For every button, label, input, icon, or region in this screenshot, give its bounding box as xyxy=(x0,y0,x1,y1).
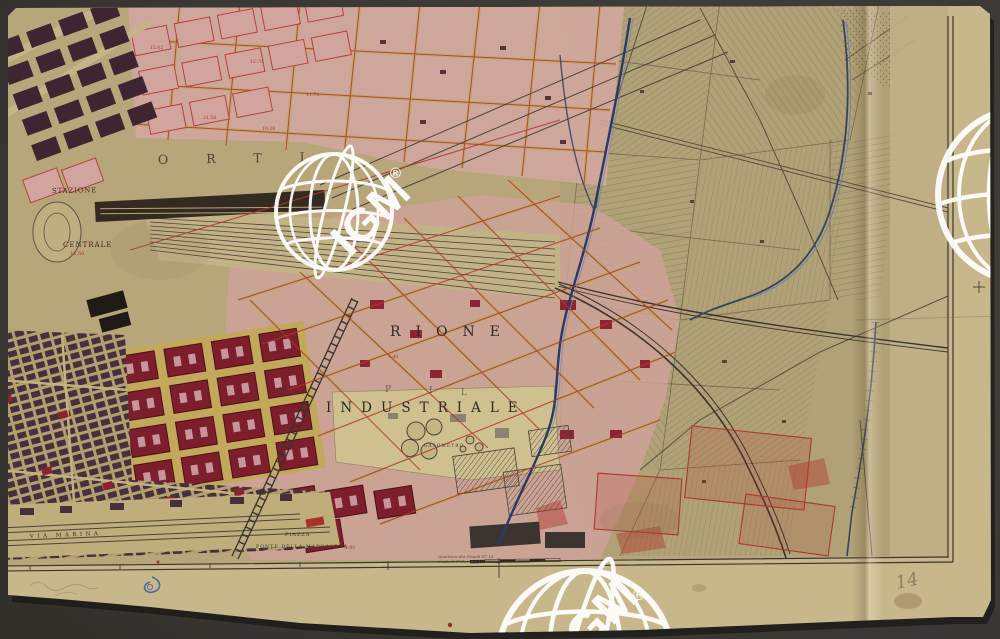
blue-pencil-mark xyxy=(145,577,160,592)
faint-letter: P xyxy=(385,385,391,395)
elevation-ponte: 2.80 xyxy=(345,545,355,551)
elevation-rione: 5.40 xyxy=(388,354,398,360)
pencil-scribble xyxy=(30,582,98,591)
label-centrale: CENTRALE xyxy=(63,241,112,249)
margin-annotations: 14 xyxy=(30,561,920,628)
faint-letter: L xyxy=(461,388,467,398)
spot-height: 11.73 xyxy=(306,92,319,98)
label-gasometro: GASOMETRO xyxy=(424,443,464,448)
label-piazza: PIAZZA xyxy=(285,532,311,538)
spot-height: 21.58 xyxy=(203,115,216,121)
faint-letter: I xyxy=(429,386,433,396)
label-ponte-della-maddalena: PONTE DELLA MADDALENA xyxy=(256,544,348,550)
label-industriale: INDUSTRIALE xyxy=(326,400,527,416)
red-spot xyxy=(448,623,452,627)
registered-symbol: ® xyxy=(633,587,645,604)
label-rione: RIONE xyxy=(390,324,515,340)
registered-symbol: ® xyxy=(390,165,401,182)
label-stazione: STAZIONE xyxy=(52,186,97,195)
photographed-map-sheet: STAZIONE CENTRALE 12.50 ORTI RIONE INDUS… xyxy=(0,0,1000,639)
spot-height: 15.02 xyxy=(150,45,163,51)
worn-strip xyxy=(890,0,948,556)
historical-city-plan: STAZIONE CENTRALE 12.50 ORTI RIONE INDUS… xyxy=(0,0,1000,639)
map-paper: STAZIONE CENTRALE 12.50 ORTI RIONE INDUS… xyxy=(0,0,1000,639)
pencil-sheet-number: 14 xyxy=(894,569,921,594)
registration-cross xyxy=(973,281,985,293)
spot-height: 12.70 xyxy=(250,59,263,65)
faint-letter: E xyxy=(279,387,286,397)
spot-height: 10.28 xyxy=(262,126,275,132)
igm-watermark-bottom: IGM ® xyxy=(498,555,672,639)
margin-note-line2: Scala di Chilometri 1:10000 xyxy=(438,559,495,564)
planned-housing-district xyxy=(110,321,327,498)
elevation-centrale: 12.50 xyxy=(70,251,84,257)
